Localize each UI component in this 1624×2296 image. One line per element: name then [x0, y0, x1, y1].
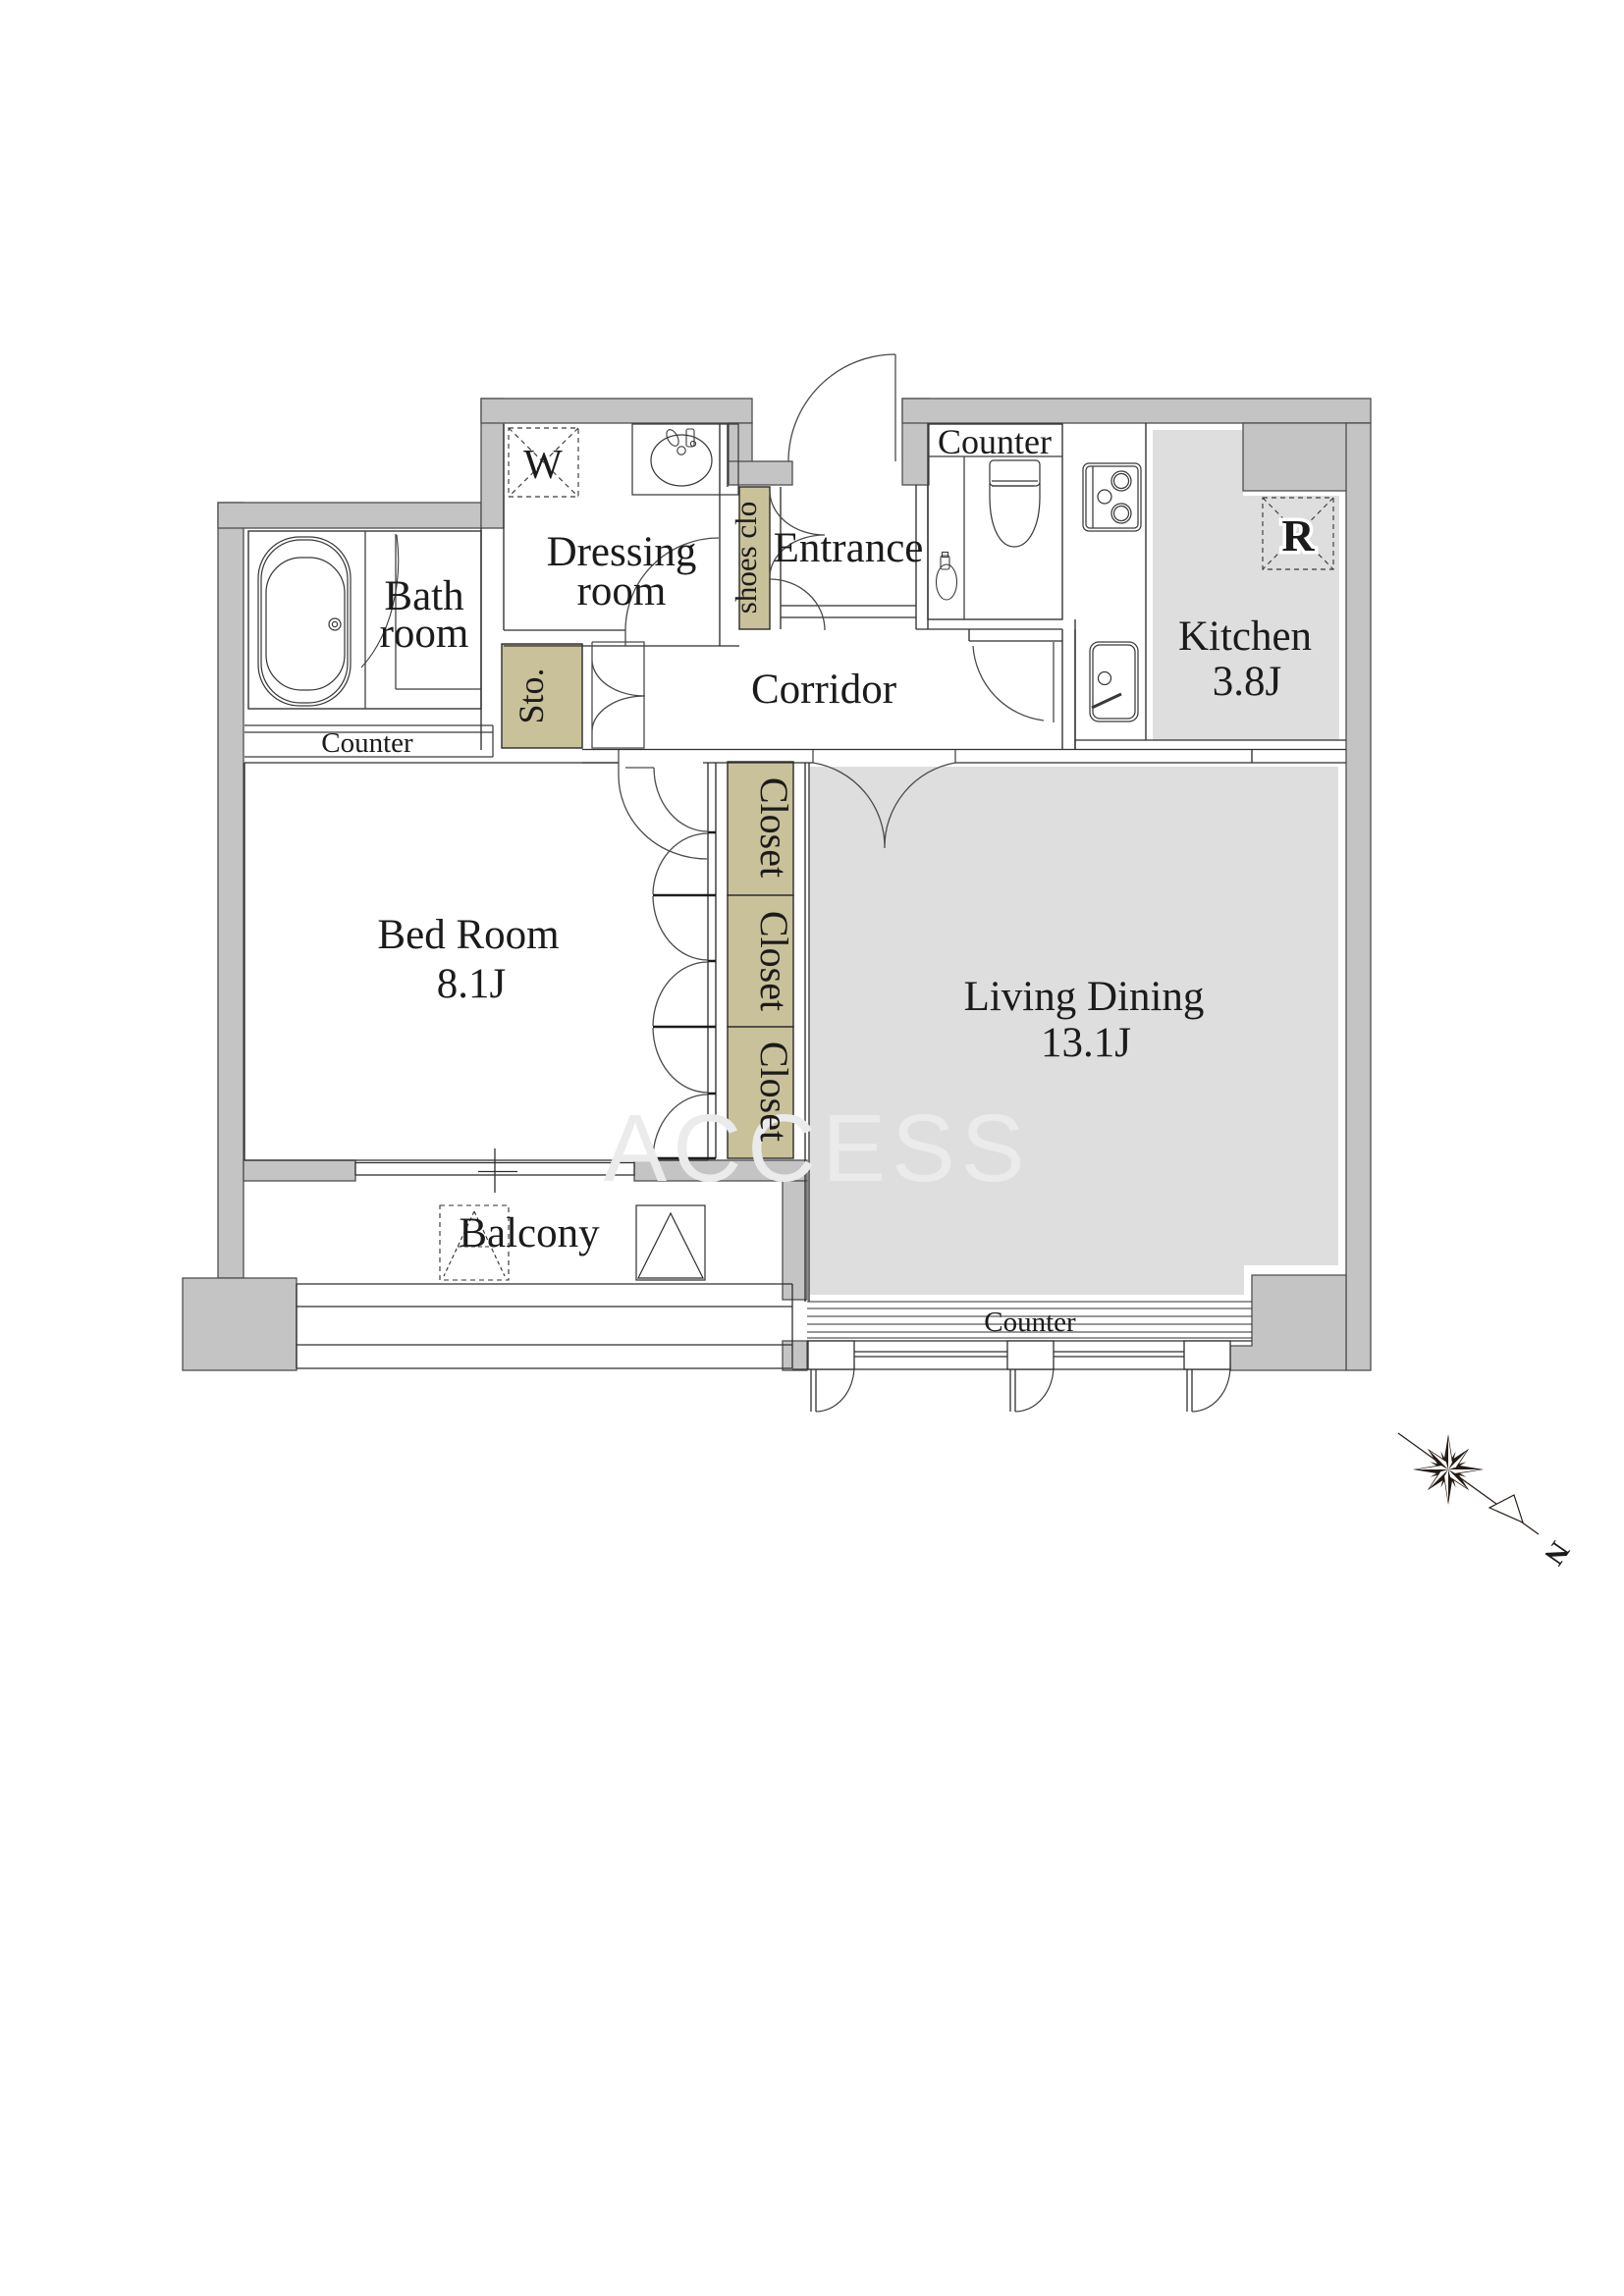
- svg-text:Closet: Closet: [752, 1041, 796, 1142]
- svg-text:Balcony: Balcony: [459, 1210, 600, 1256]
- svg-text:13.1J: 13.1J: [1041, 1020, 1131, 1066]
- svg-text:Entrance: Entrance: [774, 525, 924, 571]
- svg-text:Bed Room: Bed Room: [377, 912, 559, 958]
- svg-text:Counter: Counter: [984, 1307, 1076, 1338]
- svg-text:Corridor: Corridor: [751, 667, 896, 713]
- svg-text:room: room: [380, 611, 469, 657]
- svg-text:Counter: Counter: [321, 727, 413, 759]
- svg-text:Sto.: Sto.: [512, 667, 551, 723]
- svg-text:Closet: Closet: [752, 911, 796, 1011]
- svg-text:8.1J: 8.1J: [437, 961, 506, 1007]
- svg-text:W: W: [523, 443, 563, 488]
- svg-text:shoes clo: shoes clo: [729, 502, 763, 614]
- svg-text:3.8J: 3.8J: [1213, 659, 1281, 705]
- svg-text:Counter: Counter: [938, 422, 1052, 461]
- svg-text:Living Dining: Living Dining: [964, 974, 1205, 1020]
- svg-text:Kitchen: Kitchen: [1178, 614, 1312, 660]
- svg-text:R: R: [1281, 510, 1315, 561]
- svg-text:Closet: Closet: [752, 777, 796, 878]
- svg-text:room: room: [577, 568, 667, 614]
- svg-text:ACCESS: ACCESS: [604, 1095, 1031, 1201]
